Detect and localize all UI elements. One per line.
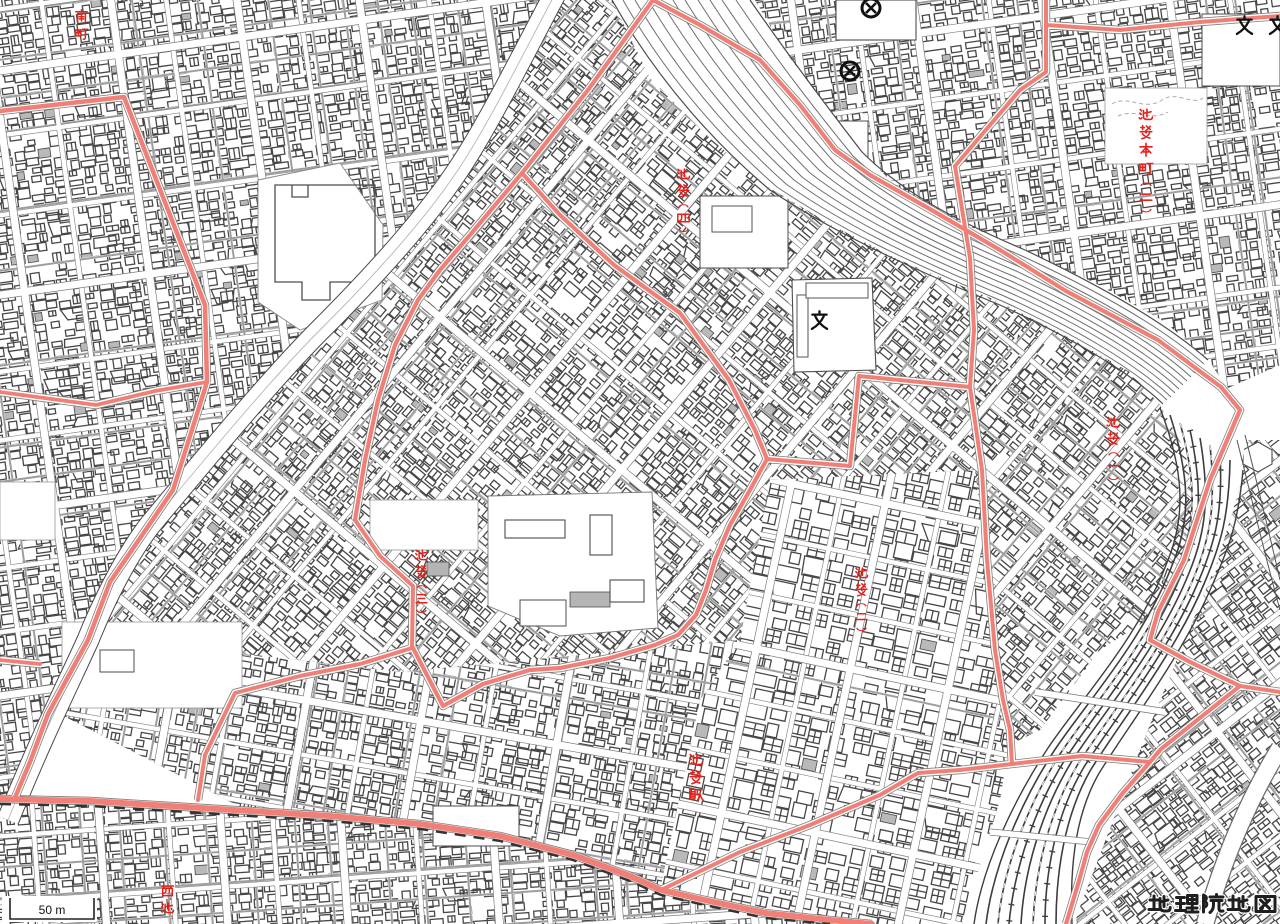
- svg-text:50 m: 50 m: [39, 903, 66, 917]
